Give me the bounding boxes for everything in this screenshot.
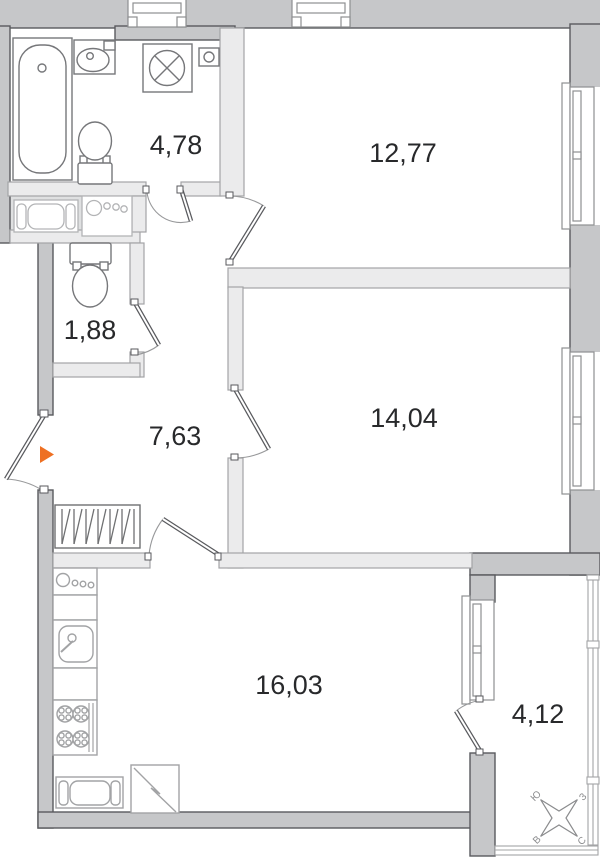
vent-block-icon [128, 0, 186, 27]
burner [73, 706, 89, 722]
balcony-area-label: 4,12 [512, 699, 565, 729]
kitchen-counter [53, 595, 97, 620]
kitchen-counter [53, 668, 97, 700]
window-icon [562, 348, 600, 494]
compass-icon: Ю З С В [529, 789, 589, 848]
neighbor-stove-icon [82, 196, 132, 236]
wc-area-label: 1,88 [64, 315, 117, 345]
toilet-icon [78, 122, 112, 184]
floor-plan: 4,78 12,77 1,88 7,63 14,04 16,03 4,12 Ю … [0, 0, 600, 857]
entry-arrow-icon [40, 446, 54, 463]
compass-star [541, 800, 578, 837]
burner [57, 706, 73, 722]
living-room-door-icon [229, 196, 264, 263]
kitchen-door-icon [149, 519, 219, 555]
window-icon [562, 83, 600, 229]
bathroom-area-label: 4,78 [150, 130, 203, 160]
burner [57, 731, 73, 747]
washing-machine-icon [143, 44, 192, 92]
vent-block-icon [292, 0, 350, 27]
kitchen-area-label: 16,03 [255, 670, 323, 700]
wardrobe-icon [55, 505, 140, 548]
radiator-icon [56, 777, 123, 808]
gas-stove-icon [53, 700, 97, 755]
balcony-door-icon [456, 700, 482, 754]
hallway-area-label: 7,63 [149, 421, 202, 451]
balcony-window-icon [462, 596, 494, 704]
wash-basin-icon [74, 40, 115, 74]
bathroom-door-icon [147, 189, 191, 223]
refrigerator-icon [131, 765, 179, 813]
living-room-area-label: 12,77 [369, 138, 437, 168]
burner [73, 731, 89, 747]
kitchen-appliance-icon [53, 568, 97, 595]
floor-plan-canvas: 4,78 12,77 1,88 7,63 14,04 16,03 4,12 Ю … [0, 0, 600, 857]
kitchen-sink-icon [53, 620, 97, 668]
entrance-door-icon [6, 414, 45, 490]
wc-door-icon [135, 303, 159, 355]
toilet-icon [70, 243, 111, 307]
bathtub-icon [13, 38, 72, 180]
water-meter-icon [199, 48, 219, 66]
windows [128, 0, 600, 704]
neighbor-radiator-icon [14, 200, 78, 232]
bedroom-area-label: 14,04 [370, 403, 438, 433]
bedroom-door-icon [235, 389, 269, 458]
